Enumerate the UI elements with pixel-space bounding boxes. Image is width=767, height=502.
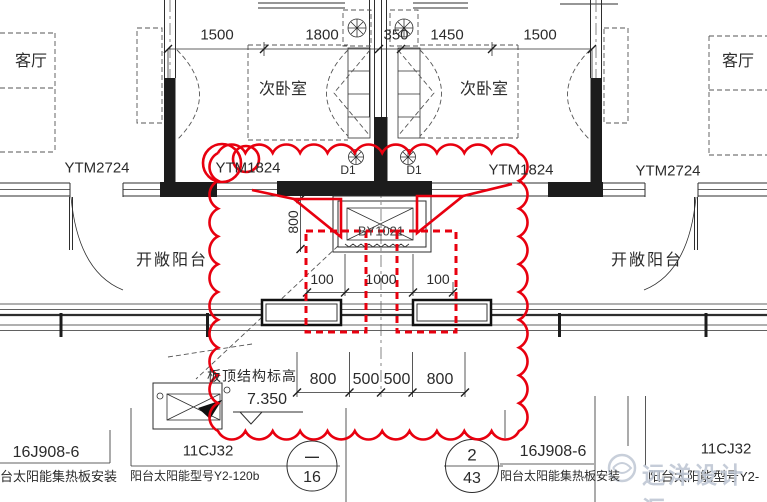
- room-label-bedroom-left: 次卧室: [259, 82, 307, 98]
- legend-left-desc-b: 阳台太阳能型号Y2-120b: [130, 470, 259, 482]
- dim-top-2: 1800: [305, 28, 338, 43]
- room-label-bedroom-right: 次卧室: [460, 82, 508, 98]
- window-code-outer-left: YTM2724: [64, 161, 129, 176]
- bubble-left-sheet: 16: [303, 470, 321, 486]
- dim-mid-3: 100: [426, 272, 449, 286]
- room-label-balcony-right: 开敞阳台: [611, 253, 683, 269]
- dim-bottom-1: 800: [310, 372, 337, 388]
- legend-left-atlas-b: 11CJ32: [183, 444, 234, 459]
- door-code-left: D1: [340, 164, 355, 176]
- detail-reference-box: [153, 383, 230, 429]
- revision-triangle-right: [417, 196, 463, 233]
- bubble-left-number: —: [305, 449, 319, 463]
- legend-left-desc-a: 阳台太阳能集热板安装: [0, 470, 117, 483]
- room-label-living-right: 客厅: [722, 54, 754, 70]
- room-label-living-left: 客厅: [15, 54, 47, 70]
- door-code-right: D1: [406, 164, 421, 176]
- dim-top-5: 1500: [523, 28, 556, 43]
- dim-mid-2: 1000: [365, 272, 396, 286]
- elevation-marker: [233, 412, 303, 424]
- solid-walls-layer: [60, 78, 708, 337]
- dim-mid-1: 100: [310, 272, 333, 286]
- legend-right-atlas-b: 11CJ32: [701, 442, 752, 457]
- legend-left-atlas-a: 16J908-6: [13, 445, 80, 461]
- legend-right-atlas-a: 16J908-6: [520, 444, 587, 460]
- dim-top-4: 1450: [430, 28, 463, 43]
- watermark-text: 远洋设计汇: [642, 456, 767, 502]
- bubble-right-number: 2: [467, 447, 476, 464]
- dim-bottom-2: 500: [353, 372, 380, 388]
- axis-centerline: [170, 0, 596, 397]
- window-code-inner-right: YTM1824: [488, 163, 553, 178]
- window-code-outer-right: YTM2724: [635, 164, 700, 179]
- room-label-balcony-left: 开敞阳台: [136, 253, 208, 269]
- dim-top-1: 1500: [200, 28, 233, 43]
- window-code-inner-left: YTM1824: [215, 161, 280, 176]
- dimension-lines: [164, 42, 596, 397]
- bubble-right-sheet: 43: [463, 471, 481, 487]
- dim-vertical-800: 800: [286, 210, 300, 233]
- elevation-label: 板顶结构标高: [207, 369, 297, 383]
- legend-right-desc-a: 阳台太阳能集热板安装: [500, 470, 620, 482]
- dim-bottom-4: 800: [427, 372, 454, 388]
- collector-box-label: BY1021: [358, 225, 404, 238]
- dim-top-3: 350: [383, 28, 408, 43]
- elevation-value: 7.350: [247, 392, 287, 408]
- revision-triangle-left: [294, 199, 341, 237]
- dim-bottom-3: 500: [384, 372, 411, 388]
- plan-linework: [0, 0, 767, 502]
- floor-plan-drawing: 1500 1800 350 1450 1500 客厅 客厅 次卧室 次卧室 开敞…: [0, 0, 767, 502]
